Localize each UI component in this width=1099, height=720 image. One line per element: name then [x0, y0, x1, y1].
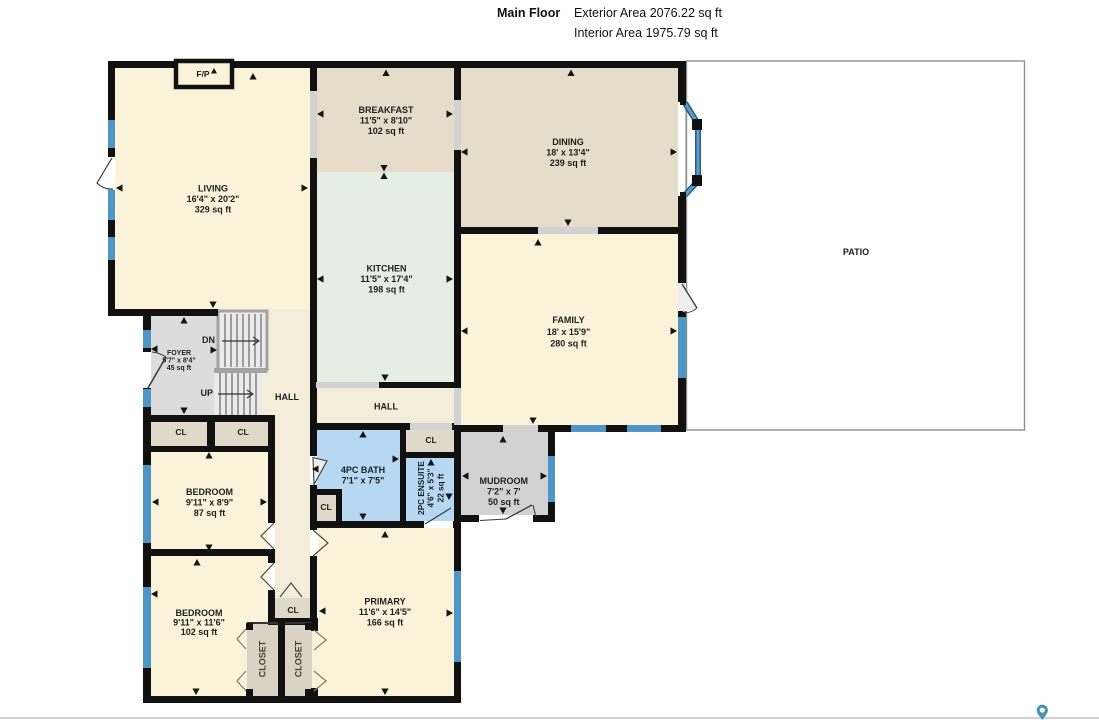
svg-text:11'5" x 17'4": 11'5" x 17'4" [360, 274, 412, 284]
svg-text:166 sq ft: 166 sq ft [367, 617, 404, 627]
svg-text:BEDROOM: BEDROOM [186, 487, 233, 497]
svg-text:11'5" x 8'10": 11'5" x 8'10" [360, 115, 412, 125]
svg-text:CL: CL [320, 502, 331, 512]
svg-text:7'2" x 7': 7'2" x 7' [487, 486, 521, 496]
svg-text:PATIO: PATIO [843, 247, 869, 257]
svg-text:198 sq ft: 198 sq ft [368, 284, 405, 294]
svg-text:239 sq ft: 239 sq ft [550, 158, 587, 168]
svg-text:PRIMARY: PRIMARY [364, 597, 405, 607]
svg-text:CL: CL [237, 427, 248, 437]
svg-text:LIVING: LIVING [198, 184, 228, 194]
svg-text:87 sq ft: 87 sq ft [194, 508, 226, 518]
svg-text:5'7" x 8'4": 5'7" x 8'4" [162, 357, 195, 364]
svg-text:7'1" x 7'5": 7'1" x 7'5" [342, 475, 385, 485]
svg-text:50 sq ft: 50 sq ft [488, 497, 520, 507]
svg-text:4PC BATH: 4PC BATH [341, 465, 385, 475]
svg-text:DINING: DINING [552, 137, 584, 147]
svg-text:UP: UP [200, 388, 213, 398]
svg-text:329 sq ft: 329 sq ft [195, 204, 232, 214]
svg-text:MUDROOM: MUDROOM [480, 476, 529, 486]
svg-text:9'11" x 11'6": 9'11" x 11'6" [173, 618, 225, 628]
svg-text:280 sq ft: 280 sq ft [550, 338, 587, 348]
svg-text:102 sq ft: 102 sq ft [181, 627, 218, 637]
svg-text:CLOSET: CLOSET [258, 640, 268, 677]
svg-text:CL: CL [175, 427, 186, 437]
svg-text:F/P: F/P [196, 69, 210, 79]
svg-text:16'4" x 20'2": 16'4" x 20'2" [187, 194, 240, 204]
svg-text:CL: CL [425, 435, 436, 445]
svg-text:CL: CL [287, 605, 298, 615]
svg-text:22 sq ft: 22 sq ft [436, 473, 445, 502]
svg-text:11'6" x 14'5": 11'6" x 14'5" [359, 607, 411, 617]
svg-text:2PC ENSUITE: 2PC ENSUITE [417, 461, 426, 515]
svg-text:BREAKFAST: BREAKFAST [358, 105, 414, 115]
svg-text:DN: DN [202, 335, 215, 345]
svg-text:4'6" x 5'3": 4'6" x 5'3" [427, 468, 436, 507]
svg-text:CLOSET: CLOSET [294, 640, 304, 677]
svg-text:18' x 15'9": 18' x 15'9" [547, 327, 591, 337]
svg-text:9'11" x 8'9": 9'11" x 8'9" [186, 497, 233, 507]
svg-text:Interior Area 1975.79 sq ft: Interior Area 1975.79 sq ft [574, 26, 718, 40]
svg-text:Main Floor: Main Floor [497, 6, 560, 20]
svg-text:Exterior Area 2076.22 sq ft: Exterior Area 2076.22 sq ft [574, 6, 723, 20]
svg-text:102 sq ft: 102 sq ft [368, 126, 405, 136]
svg-text:18' x 13'4": 18' x 13'4" [546, 147, 590, 157]
svg-text:HALL: HALL [374, 402, 398, 412]
svg-text:FAMILY: FAMILY [552, 315, 584, 325]
svg-text:HALL: HALL [275, 392, 299, 402]
svg-text:BEDROOM: BEDROOM [176, 608, 223, 618]
svg-text:FOYER: FOYER [167, 350, 191, 357]
svg-text:45 sq ft: 45 sq ft [167, 365, 192, 372]
svg-text:KITCHEN: KITCHEN [367, 264, 407, 274]
